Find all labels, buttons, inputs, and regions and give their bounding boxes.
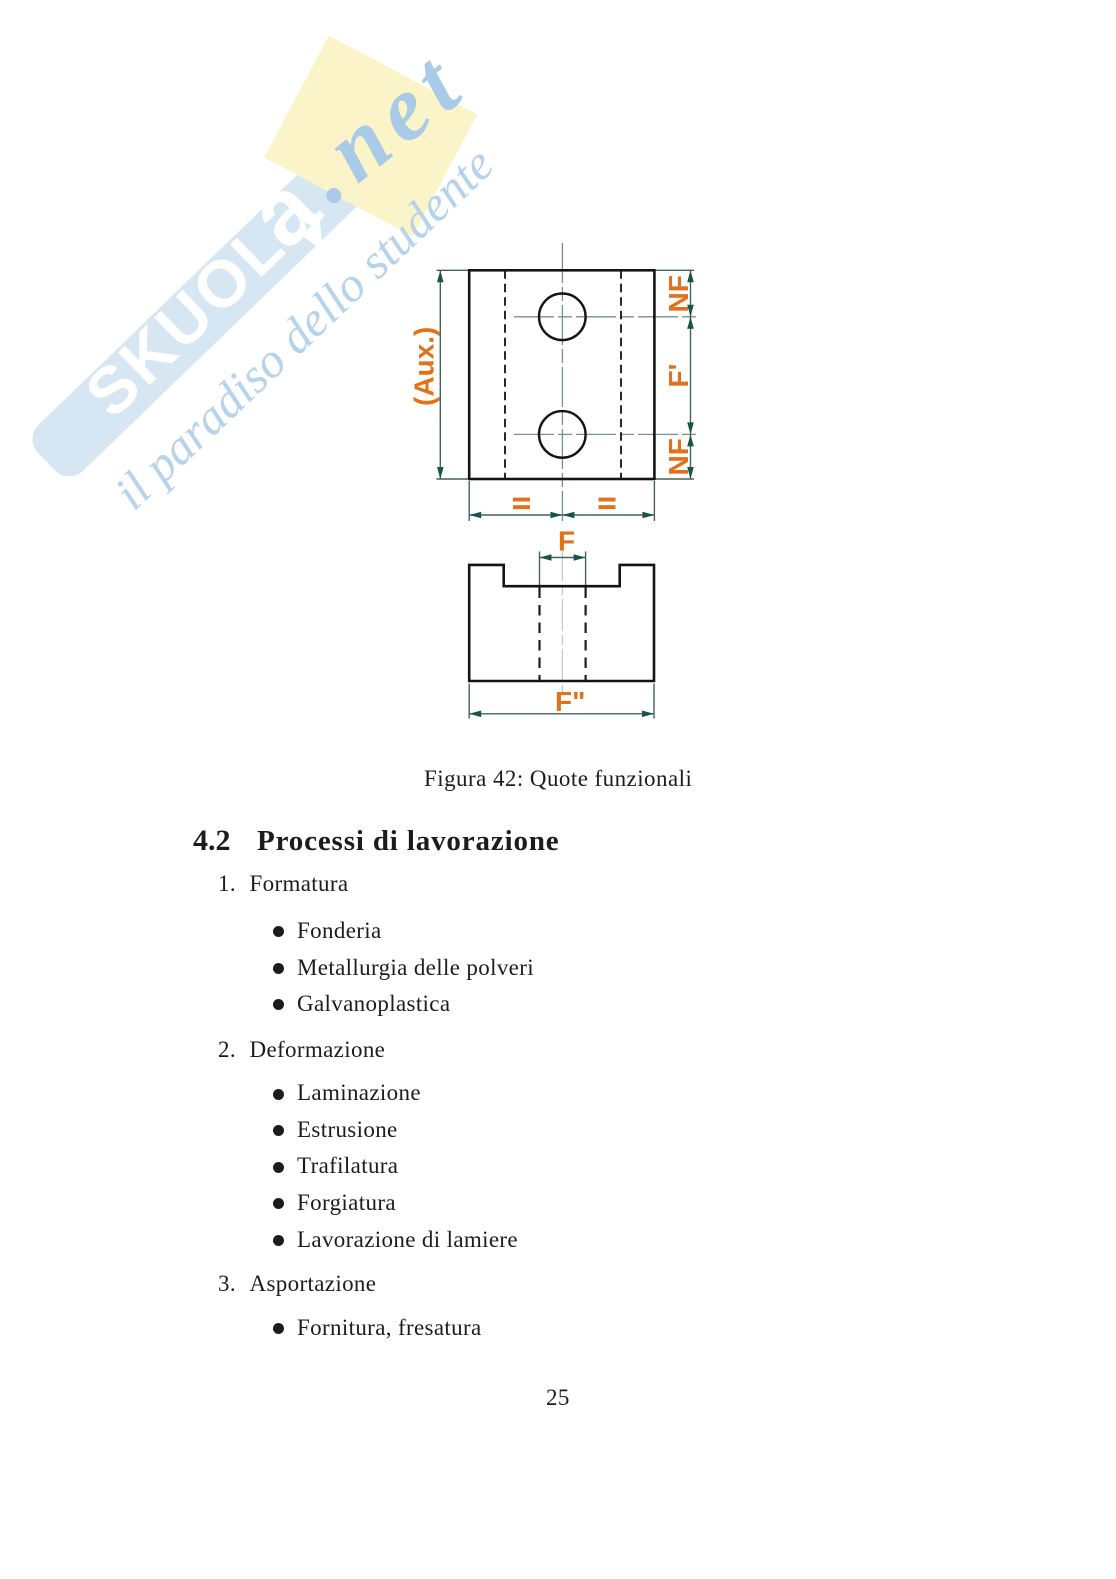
- svg-text:NF: NF: [663, 438, 694, 475]
- svg-text:(Aux.): (Aux.): [409, 327, 440, 406]
- svg-text:NF: NF: [663, 275, 694, 312]
- svg-text:F: F: [558, 526, 575, 557]
- svg-text:F": F": [555, 686, 585, 717]
- svg-text:F': F': [663, 364, 694, 388]
